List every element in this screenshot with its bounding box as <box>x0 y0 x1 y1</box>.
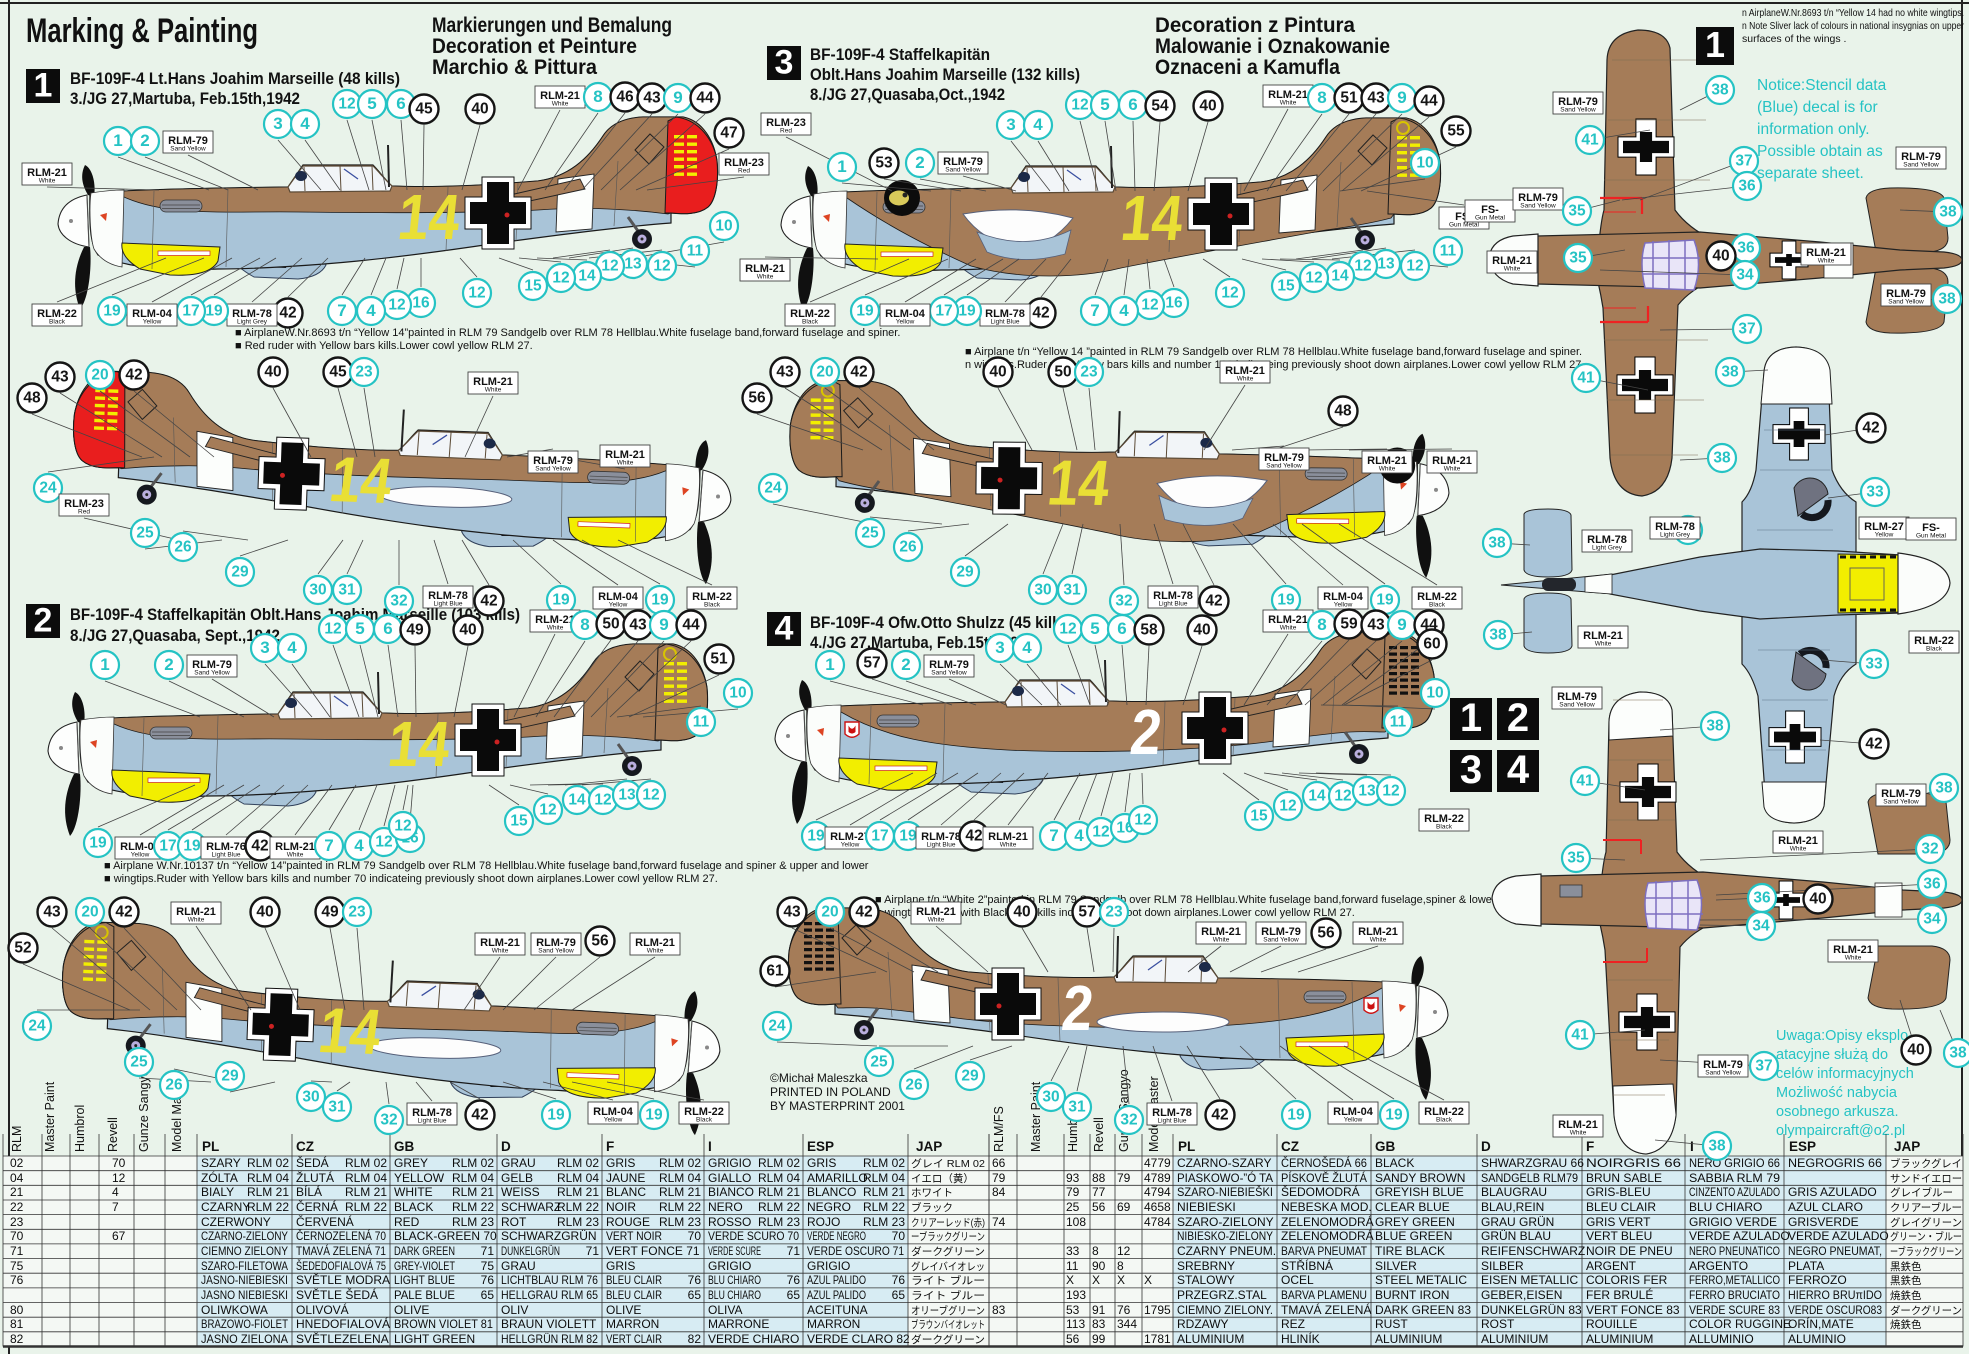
svg-text:34: 34 <box>1736 267 1754 284</box>
svg-text:5: 5 <box>367 94 376 113</box>
svg-text:12: 12 <box>552 270 569 287</box>
svg-text:9: 9 <box>673 88 682 107</box>
svg-text:AMARILLO: AMARILLO <box>807 1171 868 1185</box>
svg-text:SCHWARZ: SCHWARZ <box>501 1200 561 1214</box>
svg-text:31: 31 <box>1063 582 1081 599</box>
svg-text:33: 33 <box>1866 484 1884 501</box>
svg-text:4: 4 <box>1022 638 1032 657</box>
svg-text:ŠEDOMODRÁ: ŠEDOMODRÁ <box>1281 1184 1360 1199</box>
svg-text:ーブラックグリーン: ーブラックグリーン <box>1890 1245 1962 1258</box>
svg-text:Yellow: Yellow <box>1875 532 1894 539</box>
svg-text:36: 36 <box>1737 240 1755 257</box>
svg-text:Light Grey: Light Grey <box>1592 545 1623 552</box>
svg-text:ZELENOMODRÁ: ZELENOMODRÁ <box>1281 1228 1374 1243</box>
svg-text:JAP: JAP <box>916 1139 942 1154</box>
svg-text:26: 26 <box>905 1077 923 1094</box>
svg-text:8: 8 <box>1317 88 1326 107</box>
svg-text:ŠEDÁ: ŠEDÁ <box>296 1155 329 1170</box>
svg-text:19: 19 <box>1277 592 1295 609</box>
svg-text:GB: GB <box>394 1139 415 1154</box>
svg-text:PRZEGRZ.STAL: PRZEGRZ.STAL <box>1177 1288 1267 1302</box>
svg-text:GRIS VERT: GRIS VERT <box>1586 1215 1651 1229</box>
svg-text:70: 70 <box>688 1229 702 1243</box>
svg-text:4: 4 <box>1119 301 1129 320</box>
svg-text:15: 15 <box>1277 278 1295 295</box>
svg-text:38: 38 <box>1938 291 1956 308</box>
svg-text:15: 15 <box>1250 808 1268 825</box>
svg-text:Gun Metal: Gun Metal <box>1475 215 1506 222</box>
svg-text:ŽLUTÁ: ŽLUTÁ <box>296 1170 334 1185</box>
svg-text:Yellow: Yellow <box>604 1117 623 1124</box>
svg-text:VERDE OSCURO 71: VERDE OSCURO 71 <box>807 1244 904 1258</box>
svg-text:34: 34 <box>1923 911 1941 928</box>
svg-text:2: 2 <box>164 655 173 674</box>
svg-text:BF-109F-4 Staffelkapitän: BF-109F-4 Staffelkapitän <box>810 45 990 64</box>
svg-text:SZARY: SZARY <box>201 1156 241 1170</box>
svg-text:5: 5 <box>355 619 364 638</box>
svg-text:50: 50 <box>602 616 619 633</box>
svg-text:Master Paint: Master Paint <box>43 1081 57 1152</box>
svg-text:SZARO-FILETOWA: SZARO-FILETOWA <box>201 1259 288 1273</box>
svg-text:Revell: Revell <box>1092 1117 1106 1152</box>
svg-text:Light Blue: Light Blue <box>1159 601 1188 608</box>
svg-text:10: 10 <box>715 218 732 235</box>
svg-text:GRIGIO VERDE: GRIGIO VERDE <box>1689 1215 1777 1229</box>
svg-text:12: 12 <box>1279 798 1296 815</box>
svg-text:3: 3 <box>1460 748 1482 792</box>
svg-text:35: 35 <box>1568 203 1586 220</box>
svg-text:BRAZOWO-FIOLET: BRAZOWO-FIOLET <box>201 1317 289 1331</box>
svg-text:VERT NOIR: VERT NOIR <box>606 1229 662 1243</box>
svg-text:23: 23 <box>1105 904 1123 921</box>
svg-text:7: 7 <box>1049 826 1058 845</box>
svg-text:OCEL: OCEL <box>1281 1273 1314 1287</box>
svg-text:EISEN METALLIC: EISEN METALLIC <box>1481 1273 1578 1287</box>
svg-text:NEGRO: NEGRO <box>807 1200 851 1214</box>
svg-text:NOIR: NOIR <box>606 1200 636 1214</box>
svg-text:■ Red ruder with Yellow bars k: ■ Red ruder with Yellow bars kills.Lower… <box>235 340 533 352</box>
svg-text:12: 12 <box>1406 258 1423 275</box>
svg-text:44: 44 <box>682 617 700 634</box>
svg-text:57: 57 <box>863 655 880 672</box>
svg-text:99: 99 <box>1092 1332 1106 1346</box>
svg-text:12: 12 <box>642 787 659 804</box>
svg-text:White: White <box>552 101 569 108</box>
svg-text:35: 35 <box>1569 250 1587 267</box>
svg-text:65: 65 <box>787 1288 801 1302</box>
svg-text:CZARNO-ZIELONY: CZARNO-ZIELONY <box>201 1229 288 1243</box>
svg-text:65: 65 <box>481 1288 495 1302</box>
svg-text:GRAU: GRAU <box>501 1156 536 1170</box>
svg-text:MARRON: MARRON <box>606 1317 659 1331</box>
svg-text:CZ: CZ <box>1281 1139 1299 1154</box>
svg-text:SVĚTLE ŠEDÁ: SVĚTLE ŠEDÁ <box>296 1287 378 1302</box>
svg-text:24: 24 <box>768 1018 786 1035</box>
svg-text:OLIVE: OLIVE <box>394 1303 429 1317</box>
svg-text:4: 4 <box>1033 115 1043 134</box>
svg-text:GRIGIO: GRIGIO <box>807 1259 850 1273</box>
svg-text:12: 12 <box>1305 270 1322 287</box>
svg-text:■ Airplane t/n “White 2”painte: ■ Airplane t/n “White 2”painted in RLM 7… <box>875 894 1548 906</box>
svg-text:JASNO NIEBIESKI: JASNO NIEBIESKI <box>201 1288 288 1302</box>
svg-text:surfaces of the wings .: surfaces of the wings . <box>1742 33 1846 45</box>
svg-text:12: 12 <box>653 258 670 275</box>
svg-text:4779: 4779 <box>1144 1156 1171 1170</box>
svg-text:GIALLO: GIALLO <box>708 1171 751 1185</box>
svg-text:6: 6 <box>383 619 392 638</box>
svg-text:BLEU CLAIR: BLEU CLAIR <box>606 1273 662 1287</box>
svg-text:Sand Yellow: Sand Yellow <box>170 146 206 153</box>
svg-text:60: 60 <box>1423 636 1440 653</box>
svg-text:6: 6 <box>1117 619 1126 638</box>
svg-text:43: 43 <box>776 364 794 381</box>
svg-text:ライト ブルー: ライト ブルー <box>911 1274 985 1287</box>
svg-text:21: 21 <box>10 1185 24 1199</box>
svg-text:Sand Yellow: Sand Yellow <box>1903 162 1939 169</box>
svg-text:RLM: RLM <box>10 1126 24 1152</box>
svg-text:BIANCO: BIANCO <box>708 1185 754 1199</box>
svg-text:26: 26 <box>174 539 192 556</box>
svg-text:2: 2 <box>34 601 53 639</box>
svg-text:ALUMINIUM: ALUMINIUM <box>1481 1332 1548 1346</box>
svg-text:12: 12 <box>601 258 618 275</box>
svg-text:34: 34 <box>1752 918 1770 935</box>
svg-text:7: 7 <box>1090 301 1099 320</box>
svg-text:71: 71 <box>787 1244 801 1258</box>
svg-text:Light Grey: Light Grey <box>1660 532 1691 539</box>
svg-text:ARGENT: ARGENT <box>1586 1259 1637 1273</box>
svg-text:LIGHT BLUE: LIGHT BLUE <box>394 1273 455 1287</box>
svg-text:8: 8 <box>580 615 589 634</box>
svg-text:LIGHT GREEN: LIGHT GREEN <box>394 1332 475 1346</box>
svg-text:13: 13 <box>1358 783 1376 800</box>
svg-text:15: 15 <box>510 813 528 830</box>
svg-text:45: 45 <box>329 364 347 381</box>
svg-text:White: White <box>492 948 509 955</box>
svg-text:GRIS: GRIS <box>606 1156 635 1170</box>
svg-text:ČERVENÁ: ČERVENÁ <box>296 1214 354 1229</box>
svg-text:32: 32 <box>1921 841 1938 858</box>
svg-text:Możliwość nabycia: Możliwość nabycia <box>1776 1085 1898 1101</box>
svg-text:Gun Metal: Gun Metal <box>1449 222 1480 229</box>
svg-text:RLM 04: RLM 04 <box>345 1171 387 1185</box>
svg-text:58: 58 <box>1140 622 1158 639</box>
svg-text:■ wingtips.Ruder with Yellow b: ■ wingtips.Ruder with Yellow bars kills … <box>104 873 718 885</box>
svg-text:Red: Red <box>780 128 792 135</box>
svg-text:ダークグリーン: ダークグリーン <box>911 1245 985 1258</box>
svg-text:BURNT IRON: BURNT IRON <box>1375 1288 1449 1302</box>
svg-text:40: 40 <box>1199 98 1216 115</box>
svg-text:Possible obtain as: Possible obtain as <box>1757 143 1883 160</box>
svg-text:BRUN SABLE: BRUN SABLE <box>1586 1171 1662 1185</box>
svg-text:40: 40 <box>989 364 1006 381</box>
svg-text:42: 42 <box>251 838 268 855</box>
svg-text:29: 29 <box>231 564 249 581</box>
svg-text:White: White <box>1370 937 1387 944</box>
svg-text:PL: PL <box>1178 1139 1195 1154</box>
svg-text:MARRONE: MARRONE <box>708 1317 769 1331</box>
svg-text:30: 30 <box>1034 582 1051 599</box>
svg-text:ESP: ESP <box>807 1139 834 1154</box>
svg-text:VERDE OSCURO83: VERDE OSCURO83 <box>1788 1303 1882 1317</box>
svg-text:13: 13 <box>1377 256 1395 273</box>
svg-text:04: 04 <box>10 1171 24 1185</box>
svg-text:White: White <box>547 625 564 632</box>
svg-text:Sand Yellow: Sand Yellow <box>538 948 574 955</box>
svg-text:10: 10 <box>1426 685 1443 702</box>
svg-text:HIERRO BRUπIDO: HIERRO BRUπIDO <box>1788 1288 1882 1302</box>
svg-text:RLM 22: RLM 22 <box>247 1200 289 1214</box>
svg-text:White: White <box>1237 376 1254 383</box>
svg-text:42: 42 <box>850 364 867 381</box>
svg-text:OLIVA: OLIVA <box>708 1303 742 1317</box>
svg-text:VERDE AZULADO: VERDE AZULADO <box>1689 1229 1790 1243</box>
svg-text:CLEAR BLUE: CLEAR BLUE <box>1375 1200 1450 1214</box>
svg-text:VERDE NEGRO: VERDE NEGRO <box>807 1229 866 1243</box>
svg-text:19: 19 <box>89 835 107 852</box>
svg-text:9: 9 <box>1397 615 1406 634</box>
svg-text:RLM 21: RLM 21 <box>345 1185 387 1199</box>
svg-text:38: 38 <box>1721 364 1739 381</box>
svg-text:RLM 21: RLM 21 <box>452 1185 494 1199</box>
svg-text:ČERNOZELENÁ 70: ČERNOZELENÁ 70 <box>296 1228 386 1243</box>
svg-text:43: 43 <box>1367 617 1385 634</box>
svg-text:RLM 23: RLM 23 <box>758 1215 800 1229</box>
svg-text:4: 4 <box>354 836 364 855</box>
svg-text:37: 37 <box>1755 1058 1772 1075</box>
svg-text:焼鉄色: 焼鉄色 <box>1890 1318 1922 1331</box>
svg-text:F: F <box>1586 1139 1594 1154</box>
svg-text:RLM 21: RLM 21 <box>247 1185 289 1199</box>
svg-text:33: 33 <box>1865 656 1883 673</box>
svg-text:16: 16 <box>1165 295 1183 312</box>
svg-text:2: 2 <box>915 153 924 172</box>
svg-text:MARRON: MARRON <box>807 1317 860 1331</box>
svg-text:71: 71 <box>586 1244 600 1258</box>
svg-text:40: 40 <box>1907 1042 1924 1059</box>
svg-text:OLIWKOWA: OLIWKOWA <box>201 1303 268 1317</box>
svg-text:BLAUGRAU: BLAUGRAU <box>1481 1185 1547 1199</box>
svg-text:グレイグリーン: グレイグリーン <box>1890 1216 1962 1229</box>
svg-text:Black: Black <box>1436 824 1453 831</box>
svg-text:BLACK: BLACK <box>1375 1156 1414 1170</box>
svg-text:SVĚTLE MODRA: SVĚTLE MODRA <box>296 1272 390 1287</box>
svg-text:ダークグリーン: ダークグリーン <box>911 1333 985 1346</box>
svg-text:7: 7 <box>337 301 346 320</box>
svg-text:31: 31 <box>338 582 356 599</box>
svg-text:53: 53 <box>1066 1303 1080 1317</box>
svg-text:3: 3 <box>273 114 282 133</box>
svg-text:AZUL PALIDO: AZUL PALIDO <box>807 1273 866 1287</box>
svg-text:BLU CHIARO: BLU CHIARO <box>708 1273 761 1287</box>
svg-text:■ AirplaneW.Nr.8693 t/n “Yello: ■ AirplaneW.Nr.8693 t/n “Yellow 14”paint… <box>235 327 900 339</box>
svg-text:40: 40 <box>1809 891 1826 908</box>
svg-text:HELLGRÜN RLM 82: HELLGRÜN RLM 82 <box>501 1332 598 1346</box>
svg-text:193: 193 <box>1066 1288 1086 1302</box>
svg-text:Light Blue: Light Blue <box>991 319 1020 326</box>
svg-text:76: 76 <box>787 1273 801 1287</box>
svg-text:RLM 02: RLM 02 <box>863 1156 905 1170</box>
svg-text:67: 67 <box>112 1229 126 1243</box>
svg-text:SILVER: SILVER <box>1375 1259 1417 1273</box>
svg-text:GRIGIO: GRIGIO <box>708 1259 751 1273</box>
svg-text:GEBER,EISEN: GEBER,EISEN <box>1481 1288 1562 1302</box>
svg-text:14: 14 <box>385 708 454 780</box>
svg-text:113: 113 <box>1066 1317 1085 1331</box>
svg-text:ROUGE: ROUGE <box>606 1215 650 1229</box>
svg-text:6: 6 <box>396 94 405 113</box>
svg-text:20: 20 <box>821 904 838 921</box>
svg-text:42: 42 <box>1205 593 1222 610</box>
svg-text:X: X <box>1117 1273 1125 1287</box>
svg-text:57: 57 <box>1078 904 1095 921</box>
svg-text:8./JG 27,Quasaba, Sept.,1942: 8./JG 27,Quasaba, Sept.,1942 <box>70 626 280 645</box>
svg-text:information only.: information only. <box>1757 121 1870 138</box>
svg-text:36: 36 <box>1923 876 1941 893</box>
svg-text:Decoration z Pintura: Decoration z Pintura <box>1155 14 1355 37</box>
svg-text:Black: Black <box>704 602 721 609</box>
svg-text:54: 54 <box>1151 98 1169 115</box>
svg-text:JAUNE: JAUNE <box>606 1171 645 1185</box>
svg-text:19: 19 <box>651 592 669 609</box>
svg-text:79: 79 <box>992 1171 1006 1185</box>
svg-text:黒鉄色: 黒鉄色 <box>1890 1274 1922 1287</box>
svg-text:15: 15 <box>524 278 542 295</box>
svg-text:14: 14 <box>1044 447 1113 519</box>
svg-text:38: 38 <box>1706 718 1724 735</box>
svg-text:24: 24 <box>28 1018 46 1035</box>
svg-text:ZELENOMODRÁ: ZELENOMODRÁ <box>1281 1214 1374 1229</box>
svg-text:GRÜN BLAU: GRÜN BLAU <box>1481 1229 1551 1243</box>
svg-text:CZERWONY: CZERWONY <box>201 1215 271 1229</box>
svg-text:ESP: ESP <box>1789 1139 1816 1154</box>
svg-text:4: 4 <box>366 301 376 320</box>
svg-text:40: 40 <box>471 101 488 118</box>
svg-text:VERDE AZULADO: VERDE AZULADO <box>1788 1229 1889 1243</box>
svg-text:Sand Yellow: Sand Yellow <box>1266 463 1302 470</box>
svg-text:344: 344 <box>1117 1317 1137 1331</box>
svg-text:グレイバイオレッ: グレイバイオレッ <box>911 1260 985 1273</box>
svg-text:RLM 22: RLM 22 <box>863 1200 905 1214</box>
svg-text:42: 42 <box>965 828 982 845</box>
svg-text:40: 40 <box>264 364 281 381</box>
svg-text:RLM 04: RLM 04 <box>557 1171 599 1185</box>
svg-text:43: 43 <box>629 617 647 634</box>
svg-text:25: 25 <box>130 1054 148 1071</box>
svg-text:HNEDOFIALOVÁ: HNEDOFIALOVÁ <box>296 1316 390 1331</box>
svg-text:D: D <box>1481 1139 1491 1154</box>
svg-text:RLM 02: RLM 02 <box>452 1156 494 1170</box>
svg-text:BIALY: BIALY <box>201 1185 234 1199</box>
svg-text:Black: Black <box>696 1117 713 1124</box>
svg-text:16: 16 <box>412 295 430 312</box>
svg-text:SILBER: SILBER <box>1481 1259 1524 1273</box>
svg-text:29: 29 <box>961 1068 979 1085</box>
svg-text:ROST: ROST <box>1481 1317 1515 1331</box>
svg-text:White: White <box>1570 1130 1587 1137</box>
svg-text:26: 26 <box>899 539 917 556</box>
svg-text:75: 75 <box>10 1259 24 1273</box>
svg-text:STEEL METALIC: STEEL METALIC <box>1375 1273 1467 1287</box>
svg-text:23: 23 <box>348 904 366 921</box>
svg-text:12: 12 <box>1382 783 1399 800</box>
svg-text:GRAU GRÜN: GRAU GRÜN <box>1481 1215 1554 1229</box>
svg-text:19: 19 <box>103 303 121 320</box>
svg-text:40: 40 <box>1712 248 1729 265</box>
svg-text:14: 14 <box>1118 182 1187 254</box>
svg-text:RLM 22: RLM 22 <box>557 1200 599 1214</box>
svg-text:19: 19 <box>1376 592 1394 609</box>
svg-text:31: 31 <box>328 1099 346 1116</box>
svg-text:36: 36 <box>1738 178 1756 195</box>
svg-text:49: 49 <box>406 622 424 639</box>
svg-text:BLEU CLAIR: BLEU CLAIR <box>606 1288 662 1302</box>
svg-text:4: 4 <box>112 1185 119 1199</box>
svg-text:10: 10 <box>729 685 746 702</box>
svg-text:NIBIESKO-ZIELONY: NIBIESKO-ZIELONY <box>1177 1229 1273 1243</box>
svg-text:GRIS: GRIS <box>606 1259 635 1273</box>
svg-text:SANDGELB RLM79: SANDGELB RLM79 <box>1481 1171 1578 1185</box>
svg-text:GRIGIO: GRIGIO <box>708 1156 751 1170</box>
svg-text:separate sheet.: separate sheet. <box>1757 165 1864 182</box>
svg-text:©Michał Maleszka: ©Michał Maleszka <box>770 1071 868 1085</box>
svg-text:76: 76 <box>1117 1303 1131 1317</box>
svg-text:33: 33 <box>1066 1244 1080 1258</box>
svg-text:83: 83 <box>1092 1317 1106 1331</box>
svg-text:ブラックグレイ: ブラックグレイ <box>1890 1157 1962 1170</box>
svg-text:OLIVE: OLIVE <box>606 1303 641 1317</box>
svg-text:56: 56 <box>591 933 609 950</box>
svg-text:4: 4 <box>1074 826 1084 845</box>
svg-text:Marking & Painting: Marking & Painting <box>26 12 258 50</box>
svg-text:TMAVÁ ZELENÁ 71: TMAVÁ ZELENÁ 71 <box>296 1243 386 1258</box>
svg-text:23: 23 <box>355 364 373 381</box>
svg-text:Markierungen und Bemalung: Markierungen und Bemalung <box>432 14 672 37</box>
svg-text:NEGRO PNEUMAT,: NEGRO PNEUMAT, <box>1788 1244 1882 1258</box>
svg-text:1: 1 <box>100 655 109 674</box>
svg-text:12: 12 <box>388 297 405 314</box>
svg-text:VERDE CLARO 82: VERDE CLARO 82 <box>807 1332 910 1346</box>
svg-text:BLANC: BLANC <box>606 1185 646 1199</box>
svg-text:Light Blue: Light Blue <box>927 842 956 849</box>
svg-text:RLM 21: RLM 21 <box>659 1185 701 1199</box>
svg-text:RLM 23: RLM 23 <box>452 1215 494 1229</box>
svg-text:1: 1 <box>34 66 53 104</box>
svg-text:COLOR RUGGINE: COLOR RUGGINE <box>1689 1317 1791 1331</box>
svg-text:43: 43 <box>51 369 69 386</box>
svg-text:STŘÍBNÁ: STŘÍBNÁ <box>1281 1258 1333 1273</box>
svg-text:RLM 02: RLM 02 <box>345 1156 387 1170</box>
svg-text:GREY-VIOLET: GREY-VIOLET <box>394 1259 456 1273</box>
svg-text:ČERNÁ: ČERNÁ <box>296 1199 338 1214</box>
svg-text:VERT CLAIR: VERT CLAIR <box>606 1332 662 1346</box>
svg-text:X: X <box>1066 1273 1074 1287</box>
svg-text:VERDE SCURE: VERDE SCURE <box>708 1244 761 1258</box>
svg-text:Black: Black <box>1436 1117 1453 1124</box>
svg-text:PL: PL <box>202 1139 219 1154</box>
svg-text:Black: Black <box>1926 646 1943 653</box>
svg-text:1: 1 <box>113 131 122 150</box>
svg-text:14: 14 <box>314 994 385 1067</box>
svg-text:Light Grey: Light Grey <box>237 319 268 326</box>
svg-text:BRAUN VIOLETT: BRAUN VIOLETT <box>501 1317 597 1331</box>
svg-text:12: 12 <box>1134 812 1151 829</box>
svg-text:Yellow: Yellow <box>609 602 628 609</box>
svg-text:AZUL PALIDO: AZUL PALIDO <box>807 1288 866 1302</box>
svg-text:14: 14 <box>1331 268 1349 285</box>
svg-text:BF-109F-4 Ofw.Otto Shulzz (45: BF-109F-4 Ofw.Otto Shulzz (45 kills) <box>810 613 1070 632</box>
svg-text:ダークグリーン: ダークグリーン <box>1890 1304 1962 1317</box>
